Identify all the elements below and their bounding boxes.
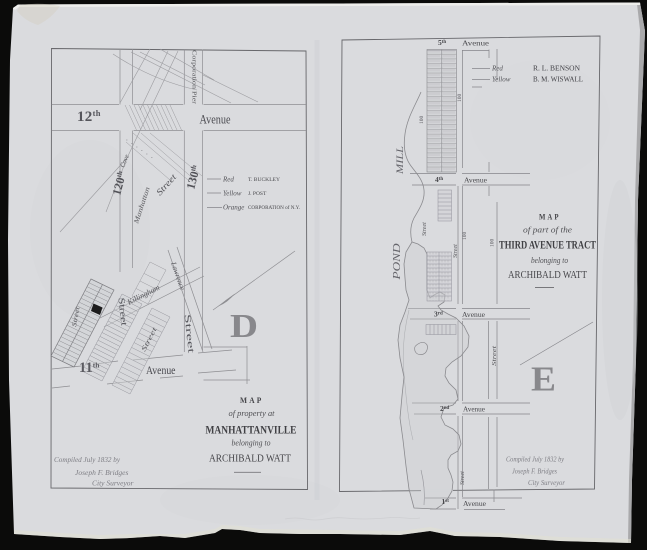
svg-text:Avenue: Avenue xyxy=(464,176,488,185)
svg-text:ARCHIBALD WATT: ARCHIBALD WATT xyxy=(209,454,291,465)
svg-text:J. POST: J. POST xyxy=(248,191,267,197)
svg-text:MANHATTANVILLE: MANHATTANVILLE xyxy=(206,423,297,437)
svg-text:belonging to: belonging to xyxy=(531,256,568,265)
svg-text:THIRD AVENUE TRACT: THIRD AVENUE TRACT xyxy=(499,238,596,252)
svg-text:Compiled July 1832 by: Compiled July 1832 by xyxy=(506,455,565,464)
svg-text:Avenue: Avenue xyxy=(462,310,486,319)
svg-text:City Surveyor: City Surveyor xyxy=(92,479,134,488)
svg-text:Street: Street xyxy=(460,471,466,485)
svg-text:Red: Red xyxy=(222,176,234,184)
svg-text:Avenue: Avenue xyxy=(462,39,490,48)
svg-text:Joseph F. Bridges: Joseph F. Bridges xyxy=(75,468,128,477)
svg-text:100: 100 xyxy=(457,94,463,103)
svg-text:Compiled July 1832 by: Compiled July 1832 by xyxy=(54,455,121,464)
svg-text:Avenue: Avenue xyxy=(146,363,176,377)
svg-text:POND: POND xyxy=(392,243,403,281)
svg-text:Street: Street xyxy=(453,244,459,258)
svg-text:T. BUCKLEY: T. BUCKLEY xyxy=(248,177,280,183)
svg-text:Street: Street xyxy=(422,222,428,236)
svg-text:MAP: MAP xyxy=(240,395,264,405)
svg-text:Avenue: Avenue xyxy=(463,405,486,414)
svg-text:R. L. BENSON: R. L. BENSON xyxy=(533,64,581,73)
svg-text:City Surveyor: City Surveyor xyxy=(528,478,565,487)
svg-text:Joseph F. Bridges: Joseph F. Bridges xyxy=(512,467,557,476)
svg-text:MAP: MAP xyxy=(539,212,561,222)
svg-text:D: D xyxy=(230,308,258,345)
svg-text:100: 100 xyxy=(462,232,468,241)
svg-text:B. M. WISWALL: B. M. WISWALL xyxy=(533,75,583,84)
svg-text:100: 100 xyxy=(490,239,496,248)
svg-text:Corporation Pier: Corporation Pier xyxy=(191,50,197,104)
svg-text:Avenue: Avenue xyxy=(463,499,487,508)
svg-text:Avenue: Avenue xyxy=(200,112,231,127)
svg-text:Yellow: Yellow xyxy=(223,190,242,198)
svg-text:CORPORATION of N.Y.: CORPORATION of N.Y. xyxy=(248,204,301,211)
svg-text:E: E xyxy=(531,360,556,399)
svg-text:of part of the: of part of the xyxy=(523,226,573,235)
svg-text:of property at: of property at xyxy=(229,409,276,418)
svg-text:Orange: Orange xyxy=(223,204,244,212)
svg-text:belonging to: belonging to xyxy=(232,439,271,448)
svg-text:100: 100 xyxy=(419,116,425,125)
svg-text:ARCHIBALD WATT: ARCHIBALD WATT xyxy=(508,270,587,281)
svg-text:Yellow: Yellow xyxy=(492,76,511,84)
svg-text:Street: Street xyxy=(491,346,498,366)
svg-text:MILL: MILL xyxy=(396,146,406,175)
svg-text:Red: Red xyxy=(491,65,503,73)
